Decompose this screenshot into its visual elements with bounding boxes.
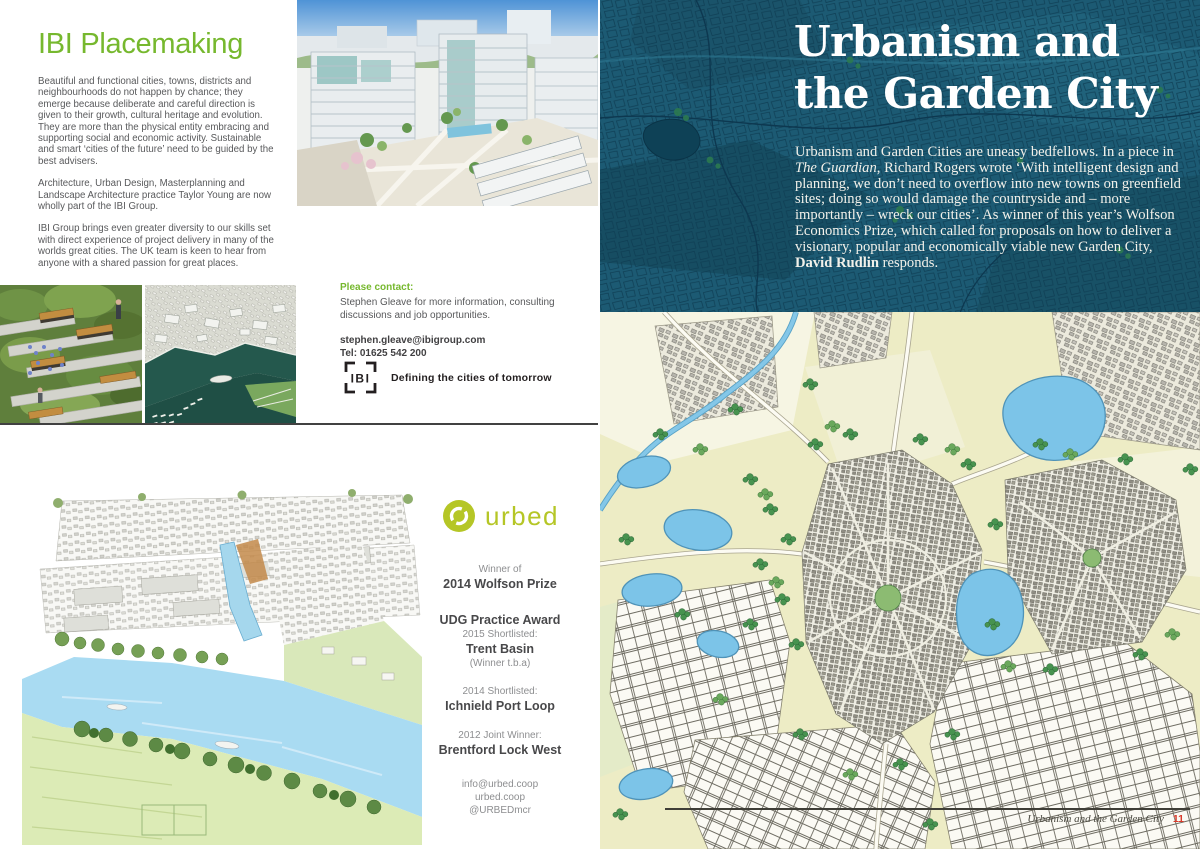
- ibi-logo-icon: IBI: [344, 361, 377, 394]
- publication-name: The Guardian: [795, 160, 877, 176]
- award-label: Winner of: [402, 563, 598, 576]
- award-title: Brentford Lock West: [402, 742, 598, 758]
- urbed-email-link[interactable]: info@urbed.coop: [402, 778, 598, 791]
- running-footer-caption: Urbanism and the Garden City: [1027, 813, 1163, 825]
- ibi-logo-text: IBI: [351, 372, 371, 386]
- ibi-logo-row: IBI Defining the cities of tomorrow: [344, 361, 552, 394]
- award-label: 2012 Joint Winner:: [402, 729, 598, 742]
- standfirst-text: responds.: [879, 255, 938, 271]
- urbed-twitter-handle[interactable]: @URBEDmcr: [402, 804, 598, 817]
- brochure-spread: IBI Placemaking Beautiful and functional…: [0, 0, 1200, 849]
- urbed-website-link[interactable]: urbed.coop: [402, 791, 598, 804]
- award-note: (Winner t.b.a): [402, 657, 598, 670]
- urbed-loop-icon: [441, 498, 477, 534]
- contact-email-link[interactable]: stephen.gleave@ibigroup.com: [340, 334, 585, 348]
- award-label: 2015 Shortlisted:: [402, 628, 598, 641]
- intro-column: Beautiful and functional cities, towns, …: [38, 76, 278, 280]
- page-number: 11: [1173, 813, 1184, 825]
- garden-city-map-illustration: [600, 312, 1200, 849]
- award-title: 2014 Wolfson Prize: [402, 576, 598, 592]
- contact-phone: Tel: 01625 542 200: [340, 347, 585, 361]
- right-page: Urbanism and the Garden City Urbanism an…: [600, 0, 1200, 849]
- waterfront-aerial-photo: [145, 285, 296, 425]
- seated-figure: [38, 388, 43, 404]
- left-page: IBI Placemaking Beautiful and functional…: [0, 0, 600, 849]
- body-paragraph: IBI Group brings even greater diversity …: [38, 223, 278, 269]
- urbed-wordmark: urbed: [485, 501, 559, 532]
- contact-heading: Please contact:: [340, 281, 585, 295]
- urbed-logo: urbed: [441, 498, 559, 534]
- awards-list: Winner of 2014 Wolfson Prize UDG Practic…: [402, 563, 598, 817]
- body-paragraph: Architecture, Urban Design, Masterplanni…: [38, 178, 278, 212]
- author-name: David Rudlin: [795, 255, 879, 271]
- contact-body: Stephen Gleave for more information, con…: [340, 296, 585, 323]
- award-title: UDG Practice Award: [402, 612, 598, 628]
- pedestrian-figure: [116, 299, 122, 319]
- residential-render-photo: [297, 0, 598, 206]
- standfirst-text: Urbanism and Garden Cities are uneasy be…: [795, 144, 1174, 160]
- article-title-line1: Urbanism and: [794, 16, 1157, 68]
- award-label: 2014 Shortlisted:: [402, 685, 598, 698]
- article-title-line2: the Garden City: [794, 68, 1157, 120]
- award-title: Ichnield Port Loop: [402, 698, 598, 714]
- contact-block: Please contact: Stephen Gleave for more …: [340, 281, 585, 361]
- park-terrace-photo: [0, 285, 142, 425]
- article-title: Urbanism and the Garden City: [794, 16, 1157, 120]
- urbed-block: urbed Winner of 2014 Wolfson Prize UDG P…: [402, 498, 598, 817]
- body-paragraph: Beautiful and functional cities, towns, …: [38, 76, 278, 167]
- ibi-tagline: Defining the cities of tomorrow: [391, 372, 552, 384]
- page-footer: Urbanism and the Garden City 11: [665, 808, 1190, 825]
- article-standfirst: Urbanism and Garden Cities are uneasy be…: [795, 145, 1193, 271]
- riverside-masterplan-illustration: [22, 487, 422, 845]
- award-title: Trent Basin: [402, 641, 598, 657]
- page-title: IBI Placemaking: [38, 28, 243, 61]
- divider-rule: [0, 423, 598, 425]
